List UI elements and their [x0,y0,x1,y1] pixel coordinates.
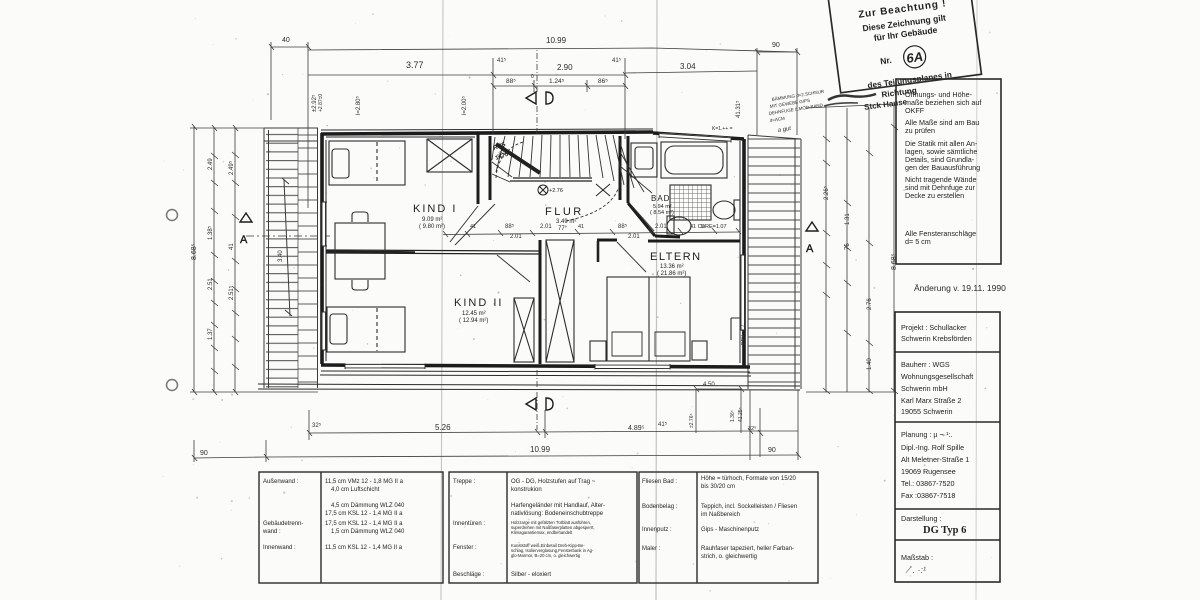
svg-text:41: 41 [229,243,235,250]
svg-text:Treppe :: Treppe : [453,479,475,485]
svg-text:l=2.80⁵: l=2.80⁵ [355,95,362,115]
svg-text:3.77: 3.77 [406,60,424,70]
svg-text:zu prüfen: zu prüfen [905,126,935,135]
svg-text:glo-Marmor, B=20 cm, o. gleich: glo-Marmor, B=20 cm, o. gleichwertig [511,553,581,558]
svg-text:Teppich, incl. Sockelleisten /: Teppich, incl. Sockelleisten / Fliesen [701,504,797,510]
svg-text:( 21.86 m²): ( 21.86 m²) [657,271,686,277]
svg-text:DG Typ 6: DG Typ 6 [923,525,966,536]
svg-text:10.99: 10.99 [546,36,567,45]
svg-text:Fliesen Bad :: Fliesen Bad : [642,479,677,485]
svg-text:19055 Schwerin: 19055 Schwerin [901,407,953,416]
svg-text:1,5 cm Dämmung WLZ 040: 1,5 cm Dämmung WLZ 040 [331,529,405,535]
svg-text:Gips - Maschinenputz: Gips - Maschinenputz [701,527,759,533]
svg-text:Bauherr : WGS: Bauherr : WGS [901,360,950,369]
svg-text:41⁵: 41⁵ [497,57,507,64]
svg-text:KIND I: KIND I [413,203,457,215]
svg-text:bis 30/20 cm: bis 30/20 cm [701,484,735,490]
svg-text:8.68⁵: 8.68⁵ [891,253,898,270]
svg-text:BAD: BAD [651,194,670,203]
svg-text:DRE=1.07: DRE=1.07 [701,224,727,230]
svg-text:DRK=1.7: DRK=1.7 [741,324,747,345]
svg-text:3.04: 3.04 [680,62,696,71]
svg-text:Schwerin Krebsförden: Schwerin Krebsförden [901,334,972,343]
svg-text:strich, o. gleichwertig: strich, o. gleichwertig [701,554,757,560]
svg-text:Dipl.-Ing. Rolf Spille: Dipl.-Ing. Rolf Spille [901,443,964,452]
svg-text:+2.76: +2.76 [549,188,563,194]
svg-text:11,5 cm KSL 12 - 1,4 MG II a: 11,5 cm KSL 12 - 1,4 MG II a [325,545,403,551]
svg-text:11,5 cm VMz 12 - 1,8 MG II a: 11,5 cm VMz 12 - 1,8 MG II a [325,479,404,485]
svg-text:Innenwand :: Innenwand : [263,545,296,551]
svg-text:1.40: 1.40 [867,358,873,370]
svg-text:2.01: 2.01 [655,224,667,230]
svg-text:5.26: 5.26 [435,423,451,432]
svg-text:41⁵: 41⁵ [658,421,668,428]
svg-text:Wohnungsgesellschaft: Wohnungsgesellschaft [901,372,973,381]
svg-text:Projekt : Schullacker: Projekt : Schullacker [901,323,967,332]
svg-text:nativlösung: Bodeneinschubtrep: nativlösung: Bodeneinschubtreppe [511,511,604,517]
svg-text:Schwerin mbH: Schwerin mbH [901,384,948,393]
svg-text:ELTERN: ELTERN [650,251,702,263]
svg-text:9.09 m²: 9.09 m² [422,217,442,223]
svg-text:88⁵: 88⁵ [505,223,515,230]
svg-text:2.26⁵: 2.26⁵ [823,185,830,200]
svg-text:Maßstab :: Maßstab : [901,553,933,562]
svg-text:4,0 cm Luftschicht: 4,0 cm Luftschicht [331,487,380,493]
svg-text:Alt Meletner-Straße 1: Alt Meletner-Straße 1 [901,455,969,464]
svg-text:32⁵: 32⁵ [748,425,756,432]
svg-text:OG - DG, Holzstufen auf Trag ~: OG - DG, Holzstufen auf Trag ~ [511,479,596,485]
svg-text:13.36 m²: 13.36 m² [660,264,684,270]
svg-text:86⁵: 86⁵ [598,78,608,85]
svg-text:Klimagarantiemax, endbehandelt: Klimagarantiemax, endbehandelt [511,530,573,535]
svg-text:Maler :: Maler : [642,546,661,552]
svg-text:41⁵: 41⁵ [612,57,622,64]
svg-text:konstrukion: konstrukion [511,487,542,493]
svg-text:32⁵: 32⁵ [312,422,322,429]
svg-text:41: 41 [470,224,476,230]
svg-text:1.24⁵: 1.24⁵ [549,78,565,85]
svg-text:( 12.94 m²): ( 12.94 m²) [459,318,488,324]
svg-text:Nr.: Nr. [880,55,893,66]
svg-text:K=1.++ =: K=1.++ = [712,126,733,132]
svg-text:Bodenbelag :: Bodenbelag : [642,504,678,510]
svg-text:2.49⁵: 2.49⁵ [228,160,235,175]
svg-text:d= 5 cm: d= 5 cm [905,237,931,246]
svg-text:A: A [806,243,814,255]
svg-text:88⁵: 88⁵ [618,223,628,230]
svg-text:40: 40 [282,37,290,44]
svg-text:90: 90 [768,447,776,454]
svg-text:90: 90 [200,450,208,457]
svg-text:Tel.: 03867-7520: Tel.: 03867-7520 [901,479,955,488]
svg-text:12.45 m²: 12.45 m² [462,311,486,317]
svg-text:( 8.54 m²): ( 8.54 m²) [650,210,674,216]
svg-text:A: A [240,234,248,246]
svg-text:Außenwand :: Außenwand : [263,479,299,485]
svg-text:Beschläge :: Beschläge : [453,572,485,578]
svg-text:77°: 77° [558,226,568,232]
svg-text:OKFF: OKFF [905,106,925,115]
svg-text:Innentüren :: Innentüren : [453,521,485,527]
svg-text:Karl Marx Straße 2: Karl Marx Straße 2 [901,396,961,405]
svg-text:90: 90 [772,42,780,49]
svg-text:±2.76⁵: ±2.76⁵ [689,413,695,428]
svg-text:19069 Rugensee: 19069 Rugensee [901,467,956,476]
svg-text:( 9.80 m²): ( 9.80 m²) [419,224,445,230]
svg-text:Änderung v. 19.11. 1990: Änderung v. 19.11. 1990 [914,283,1006,293]
svg-text:a gut: a gut [777,126,791,134]
svg-text:KIND II: KIND II [454,297,503,309]
svg-text:2.01: 2.01 [628,234,640,240]
svg-text:l=2.00⁵: l=2.00⁵ [461,95,468,115]
svg-text:6A: 6A [905,49,923,66]
svg-text:1.37: 1.37 [208,328,214,340]
svg-text:41.25⁵: 41.25⁵ [738,407,744,422]
svg-text:88⁵: 88⁵ [506,78,516,85]
svg-text:Rauhfaser tapeziert, heller Fa: Rauhfaser tapeziert, heller Farban- [701,546,794,552]
svg-text:1.36⁵: 1.36⁵ [730,410,736,422]
svg-text:17,5 cm KSL 12 - 1,4 MG II a: 17,5 cm KSL 12 - 1,4 MG II a [325,521,403,527]
svg-text:2.51: 2.51 [208,278,214,290]
svg-text:41.31⁵: 41.31⁵ [735,100,742,118]
svg-text:8.68⁵: 8.68⁵ [191,243,198,260]
svg-text:Decke zu erstellen: Decke zu erstellen [905,191,964,200]
svg-text:Stck Hause: Stck Hause [864,97,908,112]
svg-text:im Naßbereich: im Naßbereich [701,512,740,518]
svg-text:FLUR: FLUR [545,206,584,218]
svg-text:+2.87±0: +2.87±0 [318,94,324,112]
svg-text:3.40: 3.40 [278,250,284,262]
svg-text:Harfengeländer mit Handlauf, A: Harfengeländer mit Handlauf, Alter- [511,503,605,509]
svg-text:gen der Bauausführung: gen der Bauausführung [905,163,980,172]
svg-text:3.49 m²: 3.49 m² [556,219,576,225]
svg-text:2.01: 2.01 [510,234,522,240]
svg-text:Fenster :: Fenster : [453,545,477,551]
svg-text:2.90: 2.90 [557,63,573,72]
svg-text:Fax :03867-7518: Fax :03867-7518 [901,491,955,500]
svg-text:76: 76 [845,243,851,250]
svg-text:0: 0 [531,74,534,80]
svg-text:41: 41 [578,224,584,230]
svg-text:Höhe = türhoch, Formate von 15: Höhe = türhoch, Formate von 15/20 [701,476,797,482]
svg-text:17,5 cm KSL 12 - 1,4 MG II a: 17,5 cm KSL 12 - 1,4 MG II a [325,511,403,517]
svg-text:±2.92⁵: ±2.92⁵ [311,94,318,112]
svg-text:4.50: 4.50 [703,382,715,388]
svg-text:Gebäudetrenn-: Gebäudetrenn- [263,521,303,527]
svg-text:2.51⁵: 2.51⁵ [228,285,235,300]
svg-text:4,5 cm Dämmung WLZ 040: 4,5 cm Dämmung WLZ 040 [331,503,405,509]
svg-text:wand :: wand : [262,529,281,535]
svg-text:2.01: 2.01 [540,224,552,230]
svg-text:1.31: 1.31 [845,213,851,225]
svg-text:2.76: 2.76 [867,298,873,310]
svg-text:1.38⁵: 1.38⁵ [207,225,214,240]
svg-text:4.89⁵: 4.89⁵ [628,425,645,432]
svg-text:Silber - eloxiert: Silber - eloxiert [511,572,551,578]
svg-text:41 Ca: 41 Ca [690,224,706,230]
svg-text:10.99: 10.99 [530,445,551,454]
svg-text:∕`. ·:¹: ∕`. ·:¹ [905,565,926,575]
svg-text:Darstellung :: Darstellung : [901,514,941,523]
svg-text:d=ACM: d=ACM [769,116,785,123]
svg-text:Planung : µ ¬·¹:.: Planung : µ ¬·¹:. [901,430,953,439]
